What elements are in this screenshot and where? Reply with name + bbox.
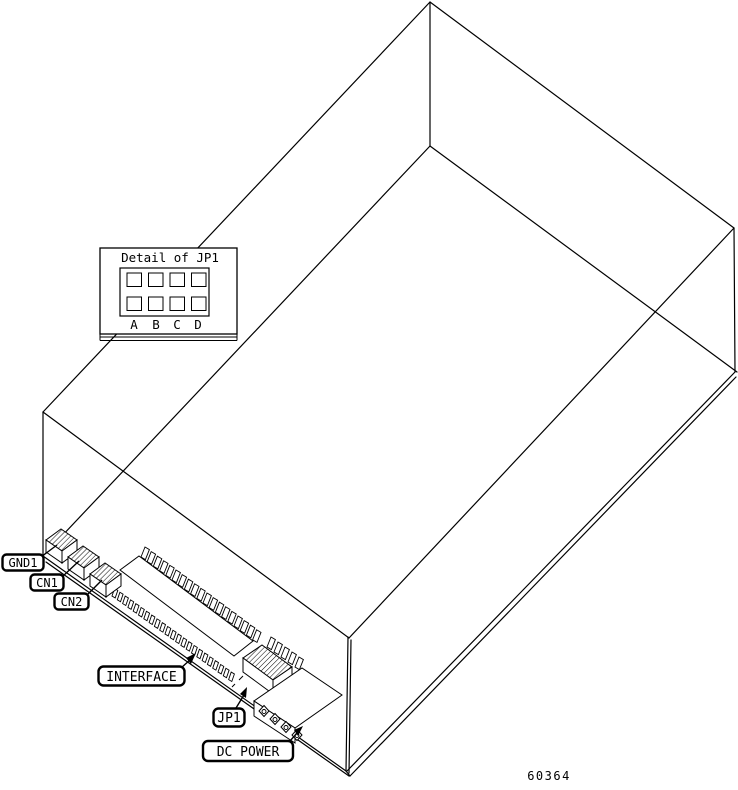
pin-tick: [192, 646, 198, 655]
pin-tooth: [234, 616, 242, 629]
pin-tooth: [228, 611, 236, 624]
pin-tick: [149, 615, 155, 624]
jp1-leader-dashes: [232, 676, 243, 687]
pin-tooth: [246, 625, 254, 638]
pin-tick: [207, 657, 213, 666]
pin-tick: [181, 638, 187, 647]
pin-tick: [123, 596, 129, 605]
chassis-edge-right-vertical: [734, 228, 735, 372]
pin-tooth: [215, 602, 223, 615]
pin-tick: [213, 661, 219, 670]
jp1-detail-inset: Detail of JP1 A B C D: [100, 248, 237, 341]
jumper-pin: [127, 297, 142, 311]
jumper-pin: [170, 297, 185, 311]
pin-tooth: [160, 561, 168, 574]
pin-tick: [128, 600, 134, 609]
cn2-label: CN2: [61, 595, 83, 609]
chassis-edge-top-right: [430, 2, 734, 228]
pin-tooth: [153, 556, 161, 569]
pin-tooth: [267, 637, 275, 650]
chassis-edge-bottom-right-2: [350, 377, 736, 776]
pin-tooth: [222, 607, 230, 620]
jumper-pin: [149, 273, 164, 287]
drive-chassis-outline: [43, 2, 737, 776]
pin-tooth: [184, 579, 192, 592]
pin-tick: [144, 611, 150, 620]
pin-tooth: [203, 593, 211, 606]
pin-tooth: [253, 630, 261, 643]
pin-tooth: [274, 642, 282, 655]
pin-tick: [229, 672, 235, 681]
chassis-edge-front-vertical: [346, 637, 348, 771]
pin-tooth: [172, 570, 180, 583]
pin-tick: [218, 665, 224, 674]
pin-tick: [202, 653, 208, 662]
jumper-pin: [192, 273, 207, 287]
pin-tooth: [240, 621, 248, 634]
pin-tick: [197, 649, 203, 658]
pin-tooth: [281, 647, 289, 660]
pin-tick: [186, 642, 192, 651]
isometric-drive-diagram: Detail of JP1 A B C D: [0, 0, 738, 790]
pin-tooth: [178, 575, 186, 588]
pin-tooth: [191, 584, 199, 597]
pin-tick: [154, 619, 160, 628]
jumper-column-d: D: [194, 317, 202, 332]
pin-tooth: [147, 552, 155, 565]
pin-tick: [223, 668, 229, 677]
jumper-column-c: C: [173, 317, 181, 332]
dc-power-label: DC POWER: [217, 745, 280, 760]
figure-number: 60364: [527, 769, 571, 783]
pin-tick: [170, 630, 176, 639]
pin-tooth: [166, 565, 174, 578]
jumper-pin: [192, 297, 207, 311]
inset-title: Detail of JP1: [121, 250, 219, 265]
gnd1-label: GND1: [9, 556, 38, 570]
interface-label: INTERFACE: [106, 670, 176, 685]
jumper-pin: [127, 273, 142, 287]
jumper-pin: [149, 297, 164, 311]
pin-tooth: [197, 588, 205, 601]
jp1-label: JP1: [217, 711, 240, 726]
jumper-pin: [170, 273, 185, 287]
technical-illustration-page: Detail of JP1 A B C D: [0, 0, 738, 790]
pin-tick: [139, 608, 145, 617]
pin-tooth: [209, 598, 217, 611]
inset-base-strip: [100, 334, 237, 341]
pin-tooth: [141, 547, 149, 560]
chassis-edge-inner-right: [430, 146, 737, 372]
pin-tick: [117, 592, 123, 601]
jumper-column-b: B: [152, 317, 160, 332]
pin-tick: [165, 627, 171, 636]
pin-tooth: [288, 652, 296, 665]
pin-tick: [176, 634, 182, 643]
cn1-label: CN1: [36, 576, 58, 590]
chassis-edge-bottom-right: [347, 372, 735, 771]
pin-tick: [133, 604, 139, 613]
pin-tick: [160, 623, 166, 632]
jumper-column-a: A: [130, 317, 138, 332]
chassis-edge-front-vertical-2: [349, 640, 351, 773]
